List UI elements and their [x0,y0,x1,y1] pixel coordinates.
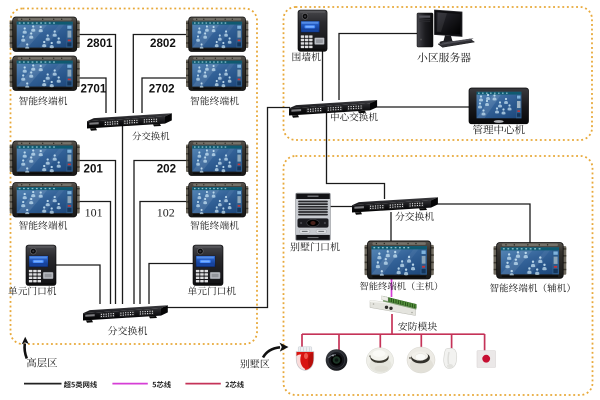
svg-text:2701: 2701 [81,83,107,96]
svg-text:201: 201 [84,163,104,176]
svg-text:202: 202 [157,163,176,176]
svg-text:2802: 2802 [150,37,176,50]
svg-text:2801: 2801 [87,37,113,50]
svg-text:2702: 2702 [149,83,175,96]
svg-text:101: 101 [85,206,103,220]
svg-text:102: 102 [157,206,175,220]
